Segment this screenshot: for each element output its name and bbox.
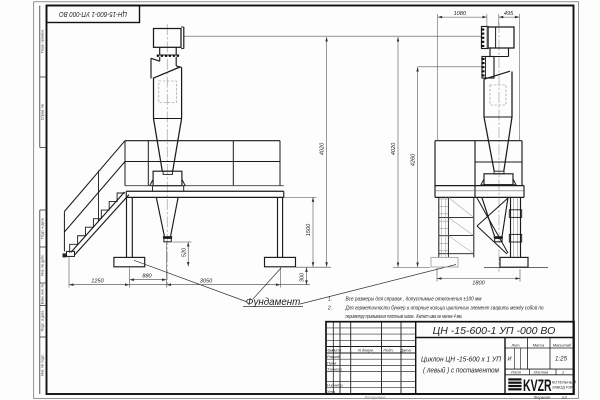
svg-text:периметру примыкания плотным ш: периметру примыкания плотным швом . Кате… — [346, 314, 463, 320]
svg-text:Т.контр.: Т.контр. — [327, 367, 343, 372]
svg-text:4020: 4020 — [391, 142, 397, 155]
svg-text:4020: 4020 — [320, 142, 326, 155]
svg-text:1250: 1250 — [91, 278, 104, 284]
svg-text:Фундамент: Фундамент — [246, 297, 301, 308]
svg-text:Копировал: Копировал — [365, 395, 386, 400]
svg-text:Циклон ЦН -15-600 х 1 УП: Циклон ЦН -15-600 х 1 УП — [421, 356, 502, 363]
svg-text:2.: 2. — [327, 305, 332, 311]
svg-text:Инв. № подл.: Инв. № подл. — [40, 354, 44, 376]
svg-text:Дата: Дата — [399, 348, 411, 353]
svg-text:880: 880 — [142, 274, 152, 280]
svg-text:Лист: Лист — [510, 370, 522, 375]
svg-text:( левый ) с постаментом: ( левый ) с постаментом — [423, 366, 499, 374]
svg-text:1.: 1. — [328, 296, 332, 302]
svg-text:Н.контр.: Н.контр. — [327, 383, 343, 388]
svg-text:Подп. и дата: Подп. и дата — [40, 218, 44, 239]
svg-text:4260: 4260 — [411, 153, 417, 166]
svg-text:Разраб.: Разраб. — [327, 354, 341, 359]
svg-text:3050: 3050 — [200, 278, 213, 284]
svg-text:Подп. и дата: Подп. и дата — [40, 311, 44, 332]
svg-text:Все размеры для справок , допу: Все размеры для справок , допустимые отк… — [346, 296, 483, 302]
svg-text:Утв.: Утв. — [327, 389, 336, 394]
svg-text:Взам. инв. №: Взам. инв. № — [40, 283, 44, 304]
svg-text:Лист: Лист — [331, 349, 341, 353]
svg-text:КОТЕЛЬНЫЙ: КОТЕЛЬНЫЙ — [552, 381, 576, 385]
svg-text:Масштаб: Масштаб — [553, 343, 572, 348]
svg-text:ЦН -15-600-1 УП -000 ВО: ЦН -15-600-1 УП -000 ВО — [433, 325, 556, 337]
svg-text:Лит.: Лит. — [510, 343, 520, 348]
svg-text:Пров.: Пров. — [327, 360, 337, 365]
svg-text:ЗАВОД РЭР: ЗАВОД РЭР — [552, 386, 574, 390]
svg-text:И: И — [508, 357, 512, 363]
svg-text:N докум.: N докум. — [358, 348, 374, 353]
svg-text:520: 520 — [182, 247, 188, 257]
svg-text:Листов: Листов — [533, 370, 549, 375]
svg-text:Масса: Масса — [533, 343, 545, 348]
svg-text:495: 495 — [504, 11, 514, 17]
svg-text:Для герметичности бункер и опо: Для герметичности бункер и опорные кольц… — [345, 304, 544, 311]
svg-text:Инв. № дубл.: Инв. № дубл. — [40, 254, 44, 276]
svg-text:А3: А3 — [560, 395, 567, 400]
svg-text:KVZR: KVZR — [523, 375, 552, 394]
svg-text:ЦН-15-600-1 УП-000 ВО: ЦН-15-600-1 УП-000 ВО — [59, 10, 127, 17]
svg-text:1: 1 — [562, 370, 564, 375]
svg-text:Справ. №: Справ. № — [40, 104, 44, 120]
svg-text:1800: 1800 — [472, 281, 485, 287]
svg-text:Подп.: Подп. — [383, 348, 393, 353]
svg-text:Перв. примен.: Перв. примен. — [40, 29, 44, 53]
svg-text:1500: 1500 — [306, 223, 312, 236]
svg-text:1:25: 1:25 — [555, 356, 568, 363]
svg-text:300: 300 — [299, 272, 305, 282]
svg-text:Формат: Формат — [534, 395, 551, 400]
svg-text:1080: 1080 — [454, 11, 467, 17]
